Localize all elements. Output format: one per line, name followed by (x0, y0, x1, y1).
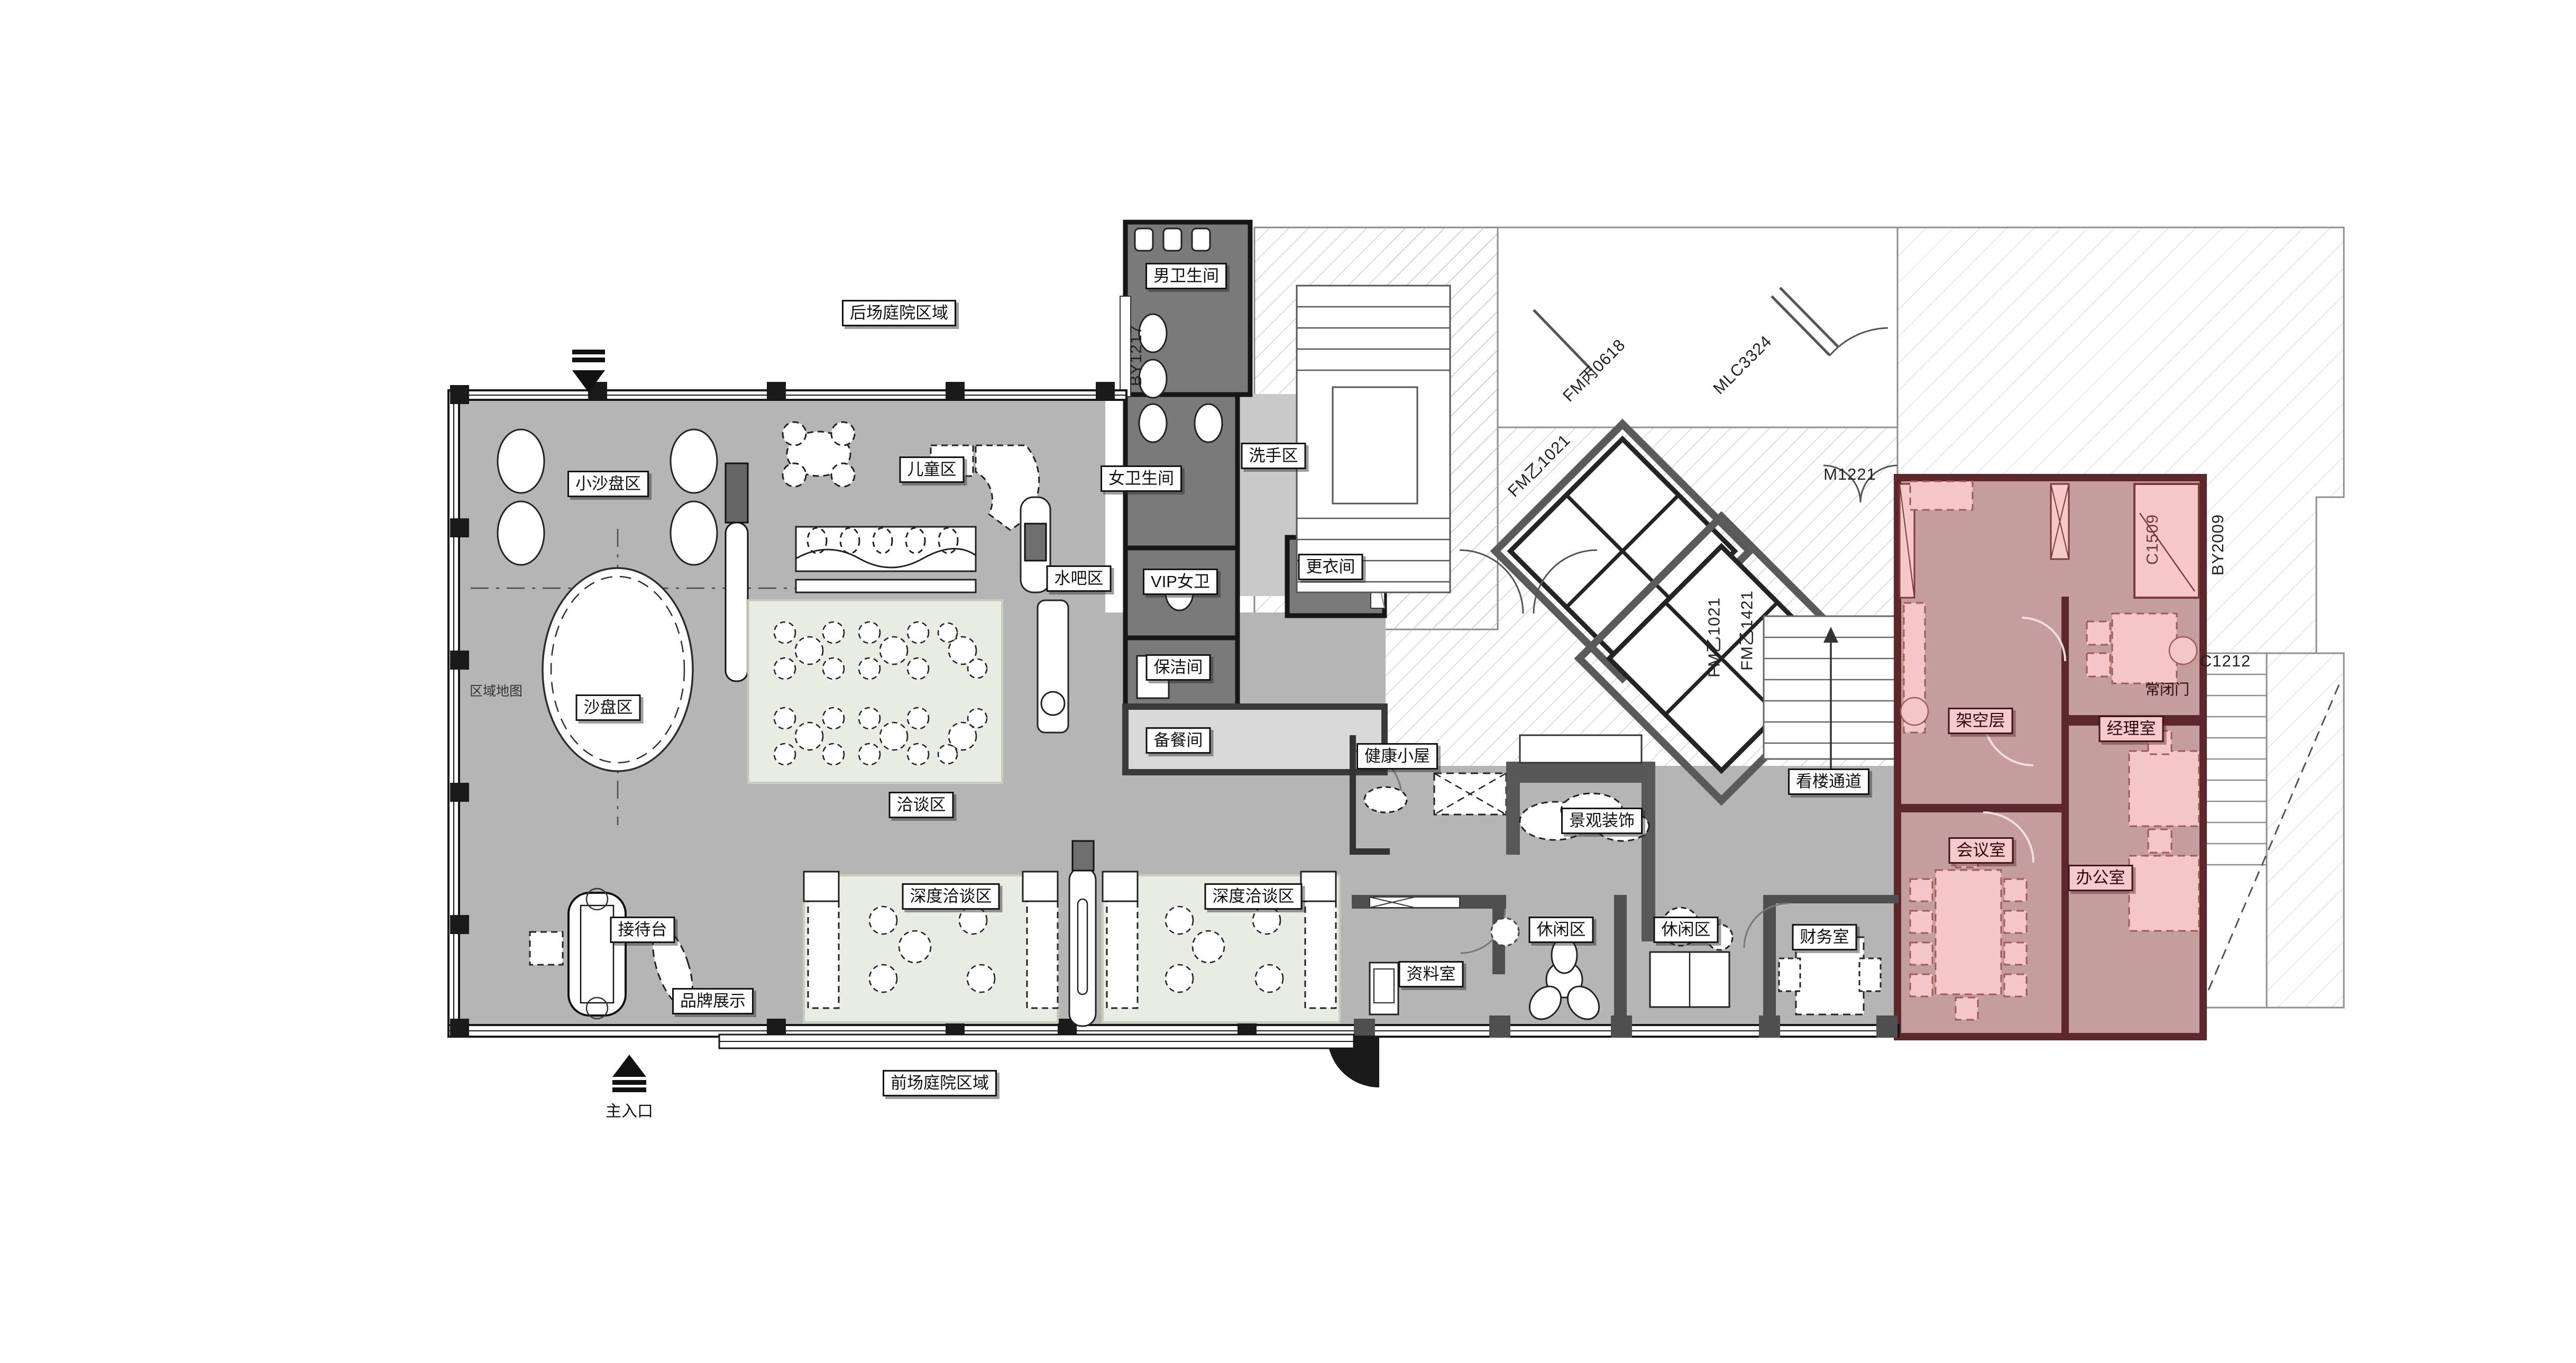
note-main-entrance: 主入口 (606, 1098, 653, 1121)
stairwell-top (1297, 286, 1450, 592)
code-by2009: BY2009 (2208, 514, 2227, 575)
room-label-manager: 经理室 (2099, 716, 2164, 742)
code-c1212: C1212 (2200, 652, 2251, 671)
area-label-water-bar: 水吧区 (1047, 565, 1112, 592)
floorplan-drawing (0, 0, 2576, 1363)
area-label-leisure-2: 休闲区 (1654, 917, 1719, 943)
area-label-small-sandtable: 小沙盘区 (567, 471, 649, 497)
area-label-reception-desk: 接待台 (610, 917, 675, 943)
area-label-kids-area: 儿童区 (900, 456, 965, 483)
area-label-sandtable: 沙盘区 (576, 694, 641, 721)
exterior-stair-right (2203, 653, 2344, 1008)
area-label-stilt-floor: 架空层 (1948, 708, 2013, 734)
room-label-meeting: 会议室 (1949, 837, 2014, 864)
area-label-deep-negotiation-2: 深度洽谈区 (1205, 883, 1303, 910)
note-area-map: 区域地图 (470, 681, 522, 700)
room-label-vip-womens-wc: VIP女卫 (1143, 569, 1218, 595)
room-label-health-cabin: 健康小屋 (1356, 743, 1438, 770)
room-label-finance: 财务室 (1792, 924, 1857, 950)
room-label-changing-room: 更衣间 (1298, 554, 1363, 580)
room-label-handwash-area: 洗手区 (1241, 443, 1306, 469)
code-fm-yi-1421: FM乙1421 (1734, 590, 1757, 671)
room-label-pantry: 备餐间 (1146, 727, 1211, 754)
area-label-back-courtyard: 后场庭院区域 (842, 300, 956, 326)
area-label-front-courtyard: 前场庭院区域 (883, 1070, 997, 1096)
room-label-cleaning-room: 保洁间 (1146, 654, 1211, 681)
room-label-mens-restroom: 男卫生间 (1145, 263, 1227, 289)
room-label-office: 办公室 (2068, 865, 2133, 891)
area-label-deep-negotiation-1: 深度洽谈区 (902, 883, 1000, 910)
code-m1221: M1221 (1823, 465, 1876, 484)
area-label-negotiation: 洽谈区 (889, 792, 954, 818)
area-label-brand-display: 品牌展示 (672, 988, 754, 1014)
code-c1509: C1509 (2143, 514, 2162, 565)
floorplan-canvas: 后场庭院区域 男卫生间 女卫生间 洗手区 小沙盘区 儿童区 水吧区 VIP女卫 … (0, 0, 2576, 1363)
code-by1217: BY1217 (1126, 325, 1145, 386)
code-fm-yi-1021-b: FM乙1021 (1701, 597, 1725, 678)
room-label-womens-restroom: 女卫生间 (1101, 465, 1182, 492)
area-label-viewing-corridor: 看楼通道 (1788, 769, 1869, 795)
room-label-archives: 资料室 (1399, 961, 1464, 987)
note-normally-closed-door: 常闭门 (2145, 678, 2189, 699)
area-label-landscape-decor: 景观装饰 (1561, 808, 1643, 834)
area-label-leisure-1: 休闲区 (1529, 917, 1594, 943)
